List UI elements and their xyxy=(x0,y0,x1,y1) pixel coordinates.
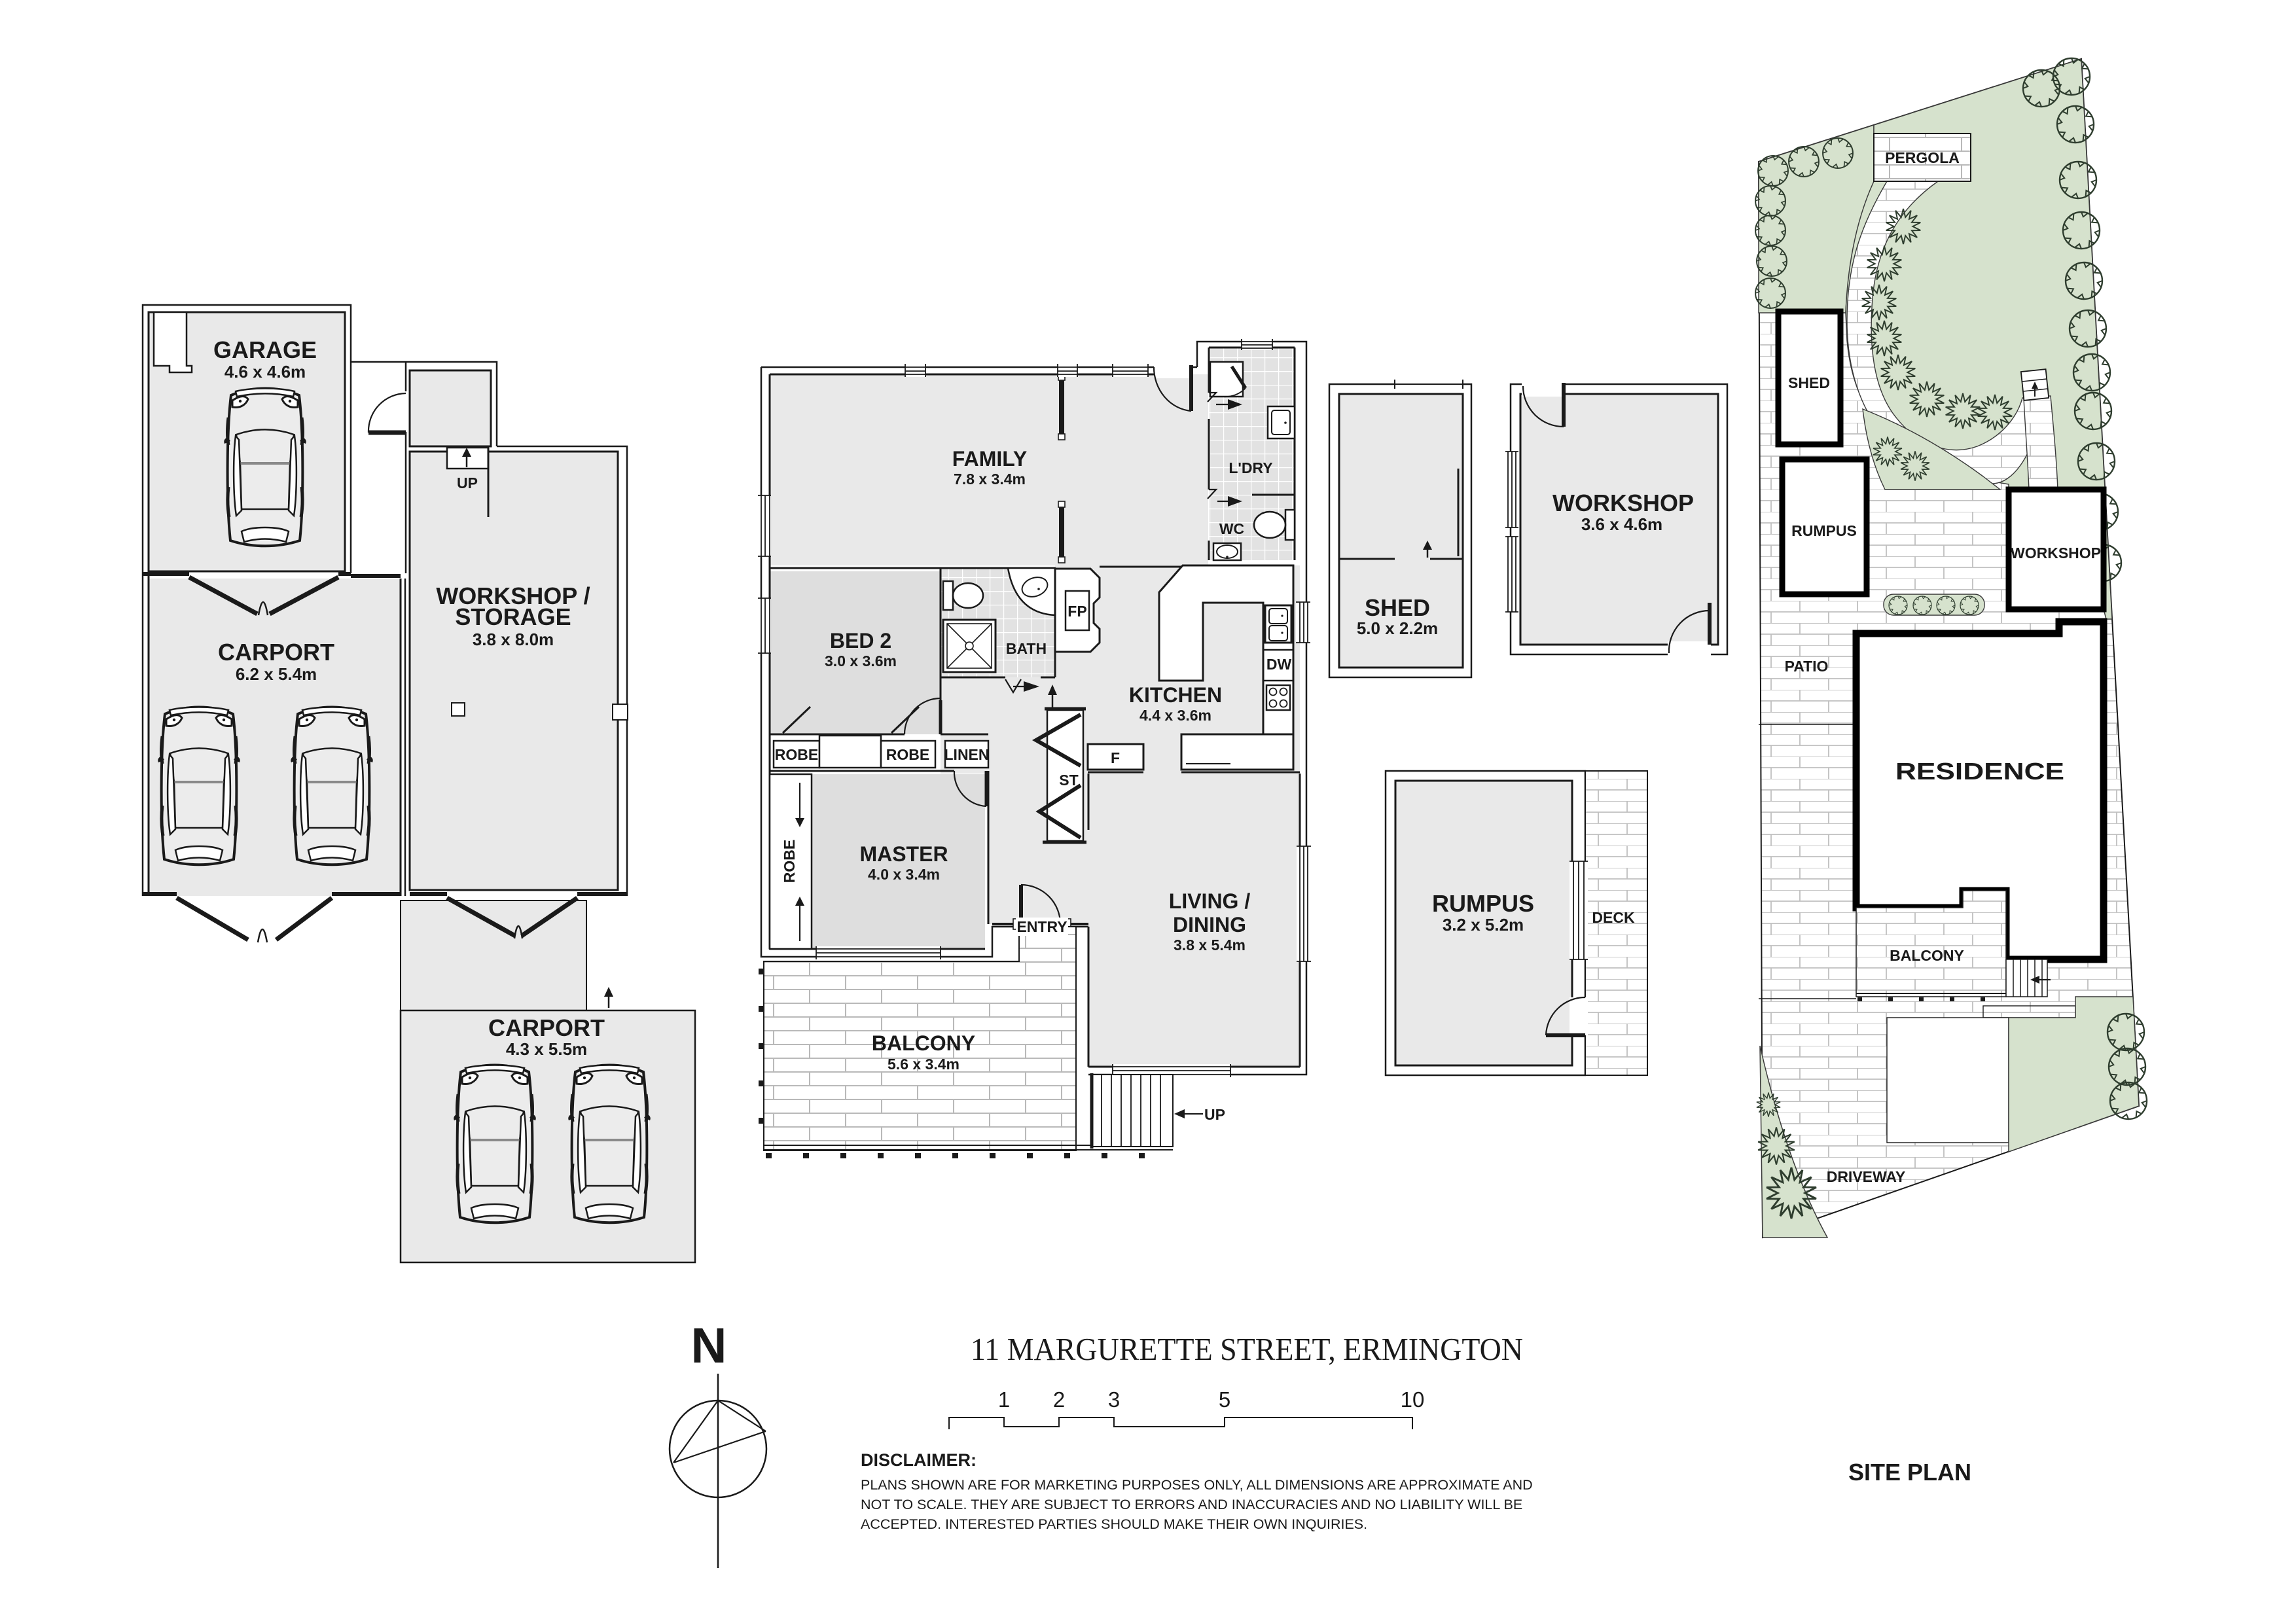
svg-text:3.0 x 3.6m: 3.0 x 3.6m xyxy=(825,652,897,669)
svg-text:4.4 x 3.6m: 4.4 x 3.6m xyxy=(1139,707,1211,724)
svg-text:BALCONY: BALCONY xyxy=(872,1031,975,1055)
svg-text:CARPORT: CARPORT xyxy=(218,639,334,666)
svg-text:CARPORT: CARPORT xyxy=(488,1014,605,1041)
svg-text:SHED: SHED xyxy=(1788,374,1830,391)
svg-text:ENTRY: ENTRY xyxy=(1016,918,1067,935)
svg-text:4.3 x 5.5m: 4.3 x 5.5m xyxy=(506,1039,587,1059)
svg-text:5: 5 xyxy=(1219,1387,1230,1412)
svg-text:RUMPUS: RUMPUS xyxy=(1432,890,1534,917)
svg-text:5.0 x 2.2m: 5.0 x 2.2m xyxy=(1357,618,1438,638)
svg-text:DRIVEWAY: DRIVEWAY xyxy=(1827,1168,1906,1185)
svg-text:1: 1 xyxy=(998,1387,1010,1412)
svg-text:LINEN: LINEN xyxy=(944,746,990,763)
svg-text:3.8 x 8.0m: 3.8 x 8.0m xyxy=(473,630,554,649)
svg-text:SITE PLAN: SITE PLAN xyxy=(1848,1459,1971,1486)
svg-text:WC: WC xyxy=(1219,520,1244,537)
svg-text:DINING: DINING xyxy=(1173,913,1246,936)
svg-text:DW: DW xyxy=(1266,656,1292,673)
svg-text:6.2 x 5.4m: 6.2 x 5.4m xyxy=(236,664,317,684)
svg-text:DISCLAIMER:: DISCLAIMER: xyxy=(861,1450,977,1470)
svg-text:10: 10 xyxy=(1401,1387,1425,1412)
svg-text:ROBE: ROBE xyxy=(886,746,929,763)
svg-text:DECK: DECK xyxy=(1592,909,1635,926)
svg-text:BALCONY: BALCONY xyxy=(1890,947,1964,964)
svg-text:RESIDENCE: RESIDENCE xyxy=(1895,758,2064,785)
svg-text:F: F xyxy=(1111,749,1120,766)
svg-text:ACCEPTED. INTERESTED PARTIES S: ACCEPTED. INTERESTED PARTIES SHOULD MAKE… xyxy=(861,1516,1367,1532)
svg-text:BED 2: BED 2 xyxy=(830,629,891,652)
svg-text:RUMPUS: RUMPUS xyxy=(1791,522,1857,539)
svg-text:2: 2 xyxy=(1053,1387,1065,1412)
svg-text:11 MARGURETTE STREET, ERMINGTO: 11 MARGURETTE STREET, ERMINGTON xyxy=(971,1331,1523,1367)
svg-text:3.6 x 4.6m: 3.6 x 4.6m xyxy=(1581,514,1662,534)
svg-text:STORAGE: STORAGE xyxy=(455,603,571,630)
svg-text:3: 3 xyxy=(1108,1387,1120,1412)
svg-text:3.2 x 5.2m: 3.2 x 5.2m xyxy=(1443,915,1524,935)
svg-text:WORKSHOP: WORKSHOP xyxy=(2011,544,2101,562)
svg-text:5.6 x 3.4m: 5.6 x 3.4m xyxy=(888,1056,960,1073)
svg-text:3.8 x 5.4m: 3.8 x 5.4m xyxy=(1174,936,1246,954)
svg-text:LIVING /: LIVING / xyxy=(1169,889,1251,913)
svg-text:WORKSHOP: WORKSHOP xyxy=(1552,490,1694,516)
svg-text:KITCHEN: KITCHEN xyxy=(1129,683,1222,707)
svg-text:4.6 x 4.6m: 4.6 x 4.6m xyxy=(224,362,306,382)
svg-text:UP: UP xyxy=(457,474,478,491)
svg-text:GARAGE: GARAGE xyxy=(213,336,317,363)
svg-text:L'DRY: L'DRY xyxy=(1229,459,1272,476)
svg-text:MASTER: MASTER xyxy=(859,842,948,866)
svg-text:UP: UP xyxy=(1204,1106,1225,1123)
svg-text:4.0 x 3.4m: 4.0 x 3.4m xyxy=(868,866,940,883)
svg-text:FP: FP xyxy=(1067,603,1086,620)
svg-text:PLANS SHOWN ARE FOR MARKETING: PLANS SHOWN ARE FOR MARKETING PURPOSES O… xyxy=(861,1477,1533,1493)
svg-text:ST: ST xyxy=(1059,772,1078,789)
svg-text:BATH: BATH xyxy=(1006,640,1047,657)
svg-text:ROBE: ROBE xyxy=(775,746,818,763)
svg-text:ROBE: ROBE xyxy=(781,840,798,883)
svg-text:FAMILY: FAMILY xyxy=(952,447,1027,471)
svg-text:N: N xyxy=(691,1318,727,1374)
svg-text:PERGOLA: PERGOLA xyxy=(1885,149,1960,166)
svg-text:SHED: SHED xyxy=(1365,594,1430,621)
svg-text:7.8 x 3.4m: 7.8 x 3.4m xyxy=(954,471,1026,488)
svg-text:PATIO: PATIO xyxy=(1785,658,1829,675)
svg-text:NOT TO SCALE. THEY ARE SUBJECT: NOT TO SCALE. THEY ARE SUBJECT TO ERRORS… xyxy=(861,1497,1522,1512)
